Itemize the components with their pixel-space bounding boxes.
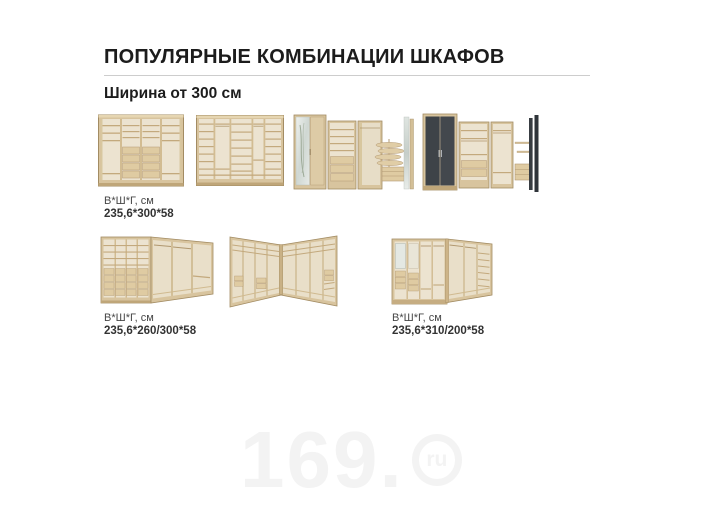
- watermark-circle: ru: [412, 434, 462, 486]
- watermark-domain: ru: [426, 448, 447, 472]
- product-image-corner-wardrobe-310-200[interactable]: [390, 233, 494, 311]
- wardrobe-illustration: [99, 234, 216, 309]
- wardrobe-illustration: [98, 113, 184, 189]
- product-image-wardrobe-straight-drawers[interactable]: [98, 113, 184, 189]
- wardrobe-illustration: [228, 232, 340, 311]
- dimensions-label-row2-left: В*Ш*Г, см 235,6*260/300*58: [104, 313, 196, 337]
- dimensions-value: 235,6*310/200*58: [392, 326, 484, 337]
- dimensions-value: 235,6*300*58: [104, 209, 174, 220]
- dimensions-caption: В*Ш*Г, см: [104, 196, 174, 207]
- dimensions-label-row1: В*Ш*Г, см 235,6*300*58: [104, 196, 174, 220]
- dimensions-caption: В*Ш*Г, см: [104, 313, 196, 324]
- section-subtitle: Ширина от 300 см: [104, 85, 242, 103]
- page-title: ПОПУЛЯРНЫЕ КОМБИНАЦИИ ШКАФОВ: [104, 46, 505, 69]
- product-image-wardrobe-combo-dark-doors[interactable]: [421, 108, 539, 196]
- dimensions-value: 235,6*260/300*58: [104, 326, 196, 337]
- wardrobe-illustration: [292, 109, 414, 196]
- wardrobe-illustration: [421, 108, 539, 196]
- site-watermark-169ru: 169. ru: [240, 412, 462, 508]
- product-image-corner-wardrobe-inside-view[interactable]: [228, 232, 340, 311]
- dimensions-caption: В*Ш*Г, см: [392, 313, 484, 324]
- dimensions-label-row2-right: В*Ш*Г, см 235,6*310/200*58: [392, 313, 484, 337]
- catalog-page: ПОПУЛЯРНЫЕ КОМБИНАЦИИ ШКАФОВ Ширина от 3…: [0, 0, 702, 523]
- product-image-corner-wardrobe-260-300[interactable]: [99, 234, 216, 309]
- wardrobe-illustration: [196, 112, 284, 189]
- title-divider: [104, 75, 590, 76]
- watermark-number: 169.: [240, 420, 404, 500]
- product-image-wardrobe-combo-mirror-print[interactable]: [292, 109, 414, 196]
- product-image-wardrobe-straight-shelves[interactable]: [196, 112, 284, 189]
- wardrobe-illustration: [390, 233, 494, 311]
